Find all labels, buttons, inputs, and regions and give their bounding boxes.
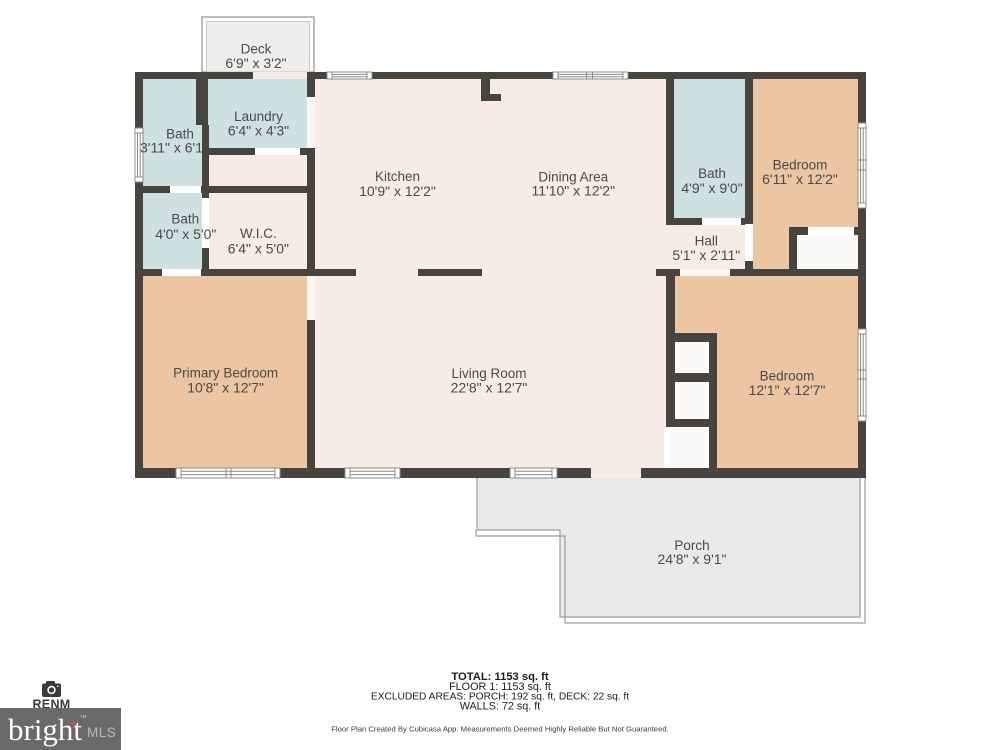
- svg-text:Bath: Bath: [698, 166, 726, 181]
- svg-text:6'9" x 3'2": 6'9" x 3'2": [225, 55, 286, 71]
- svg-text:Kitchen: Kitchen: [375, 169, 420, 184]
- svg-text:Bath: Bath: [171, 212, 199, 227]
- svg-text:10'9" x 12'2": 10'9" x 12'2": [359, 183, 436, 199]
- svg-text:5'1" x 2'11": 5'1" x 2'11": [672, 247, 740, 263]
- svg-text:TM: TM: [80, 714, 87, 719]
- svg-text:Floor Plan Created By Cubicasa: Floor Plan Created By Cubicasa App. Meas…: [331, 725, 669, 734]
- svg-text:+: +: [70, 716, 78, 731]
- svg-text:6'4" x 5'0": 6'4" x 5'0": [228, 241, 289, 257]
- svg-text:6'11" x 12'2": 6'11" x 12'2": [762, 171, 838, 187]
- svg-text:3'11" x 6'1": 3'11" x 6'1": [140, 140, 208, 156]
- svg-text:W.I.C.: W.I.C.: [240, 226, 277, 241]
- svg-text:12'1" x 12'7": 12'1" x 12'7": [749, 382, 826, 398]
- svg-text:4'9" x 9'0": 4'9" x 9'0": [681, 180, 742, 196]
- svg-text:24'8" x 9'1": 24'8" x 9'1": [658, 551, 727, 567]
- svg-text:4'0" x 5'0": 4'0" x 5'0": [155, 226, 216, 242]
- svg-text:22'8" x 12'7": 22'8" x 12'7": [451, 380, 528, 396]
- svg-text:10'8" x 12'7": 10'8" x 12'7": [187, 380, 264, 396]
- svg-text:11'10" x 12'2": 11'10" x 12'2": [532, 183, 616, 199]
- svg-text:Primary Bedroom: Primary Bedroom: [173, 366, 278, 381]
- svg-text:MLS: MLS: [87, 725, 116, 740]
- svg-text:WALLS: 72 sq. ft: WALLS: 72 sq. ft: [460, 700, 541, 712]
- svg-text:6'4" x 4'3": 6'4" x 4'3": [228, 122, 289, 138]
